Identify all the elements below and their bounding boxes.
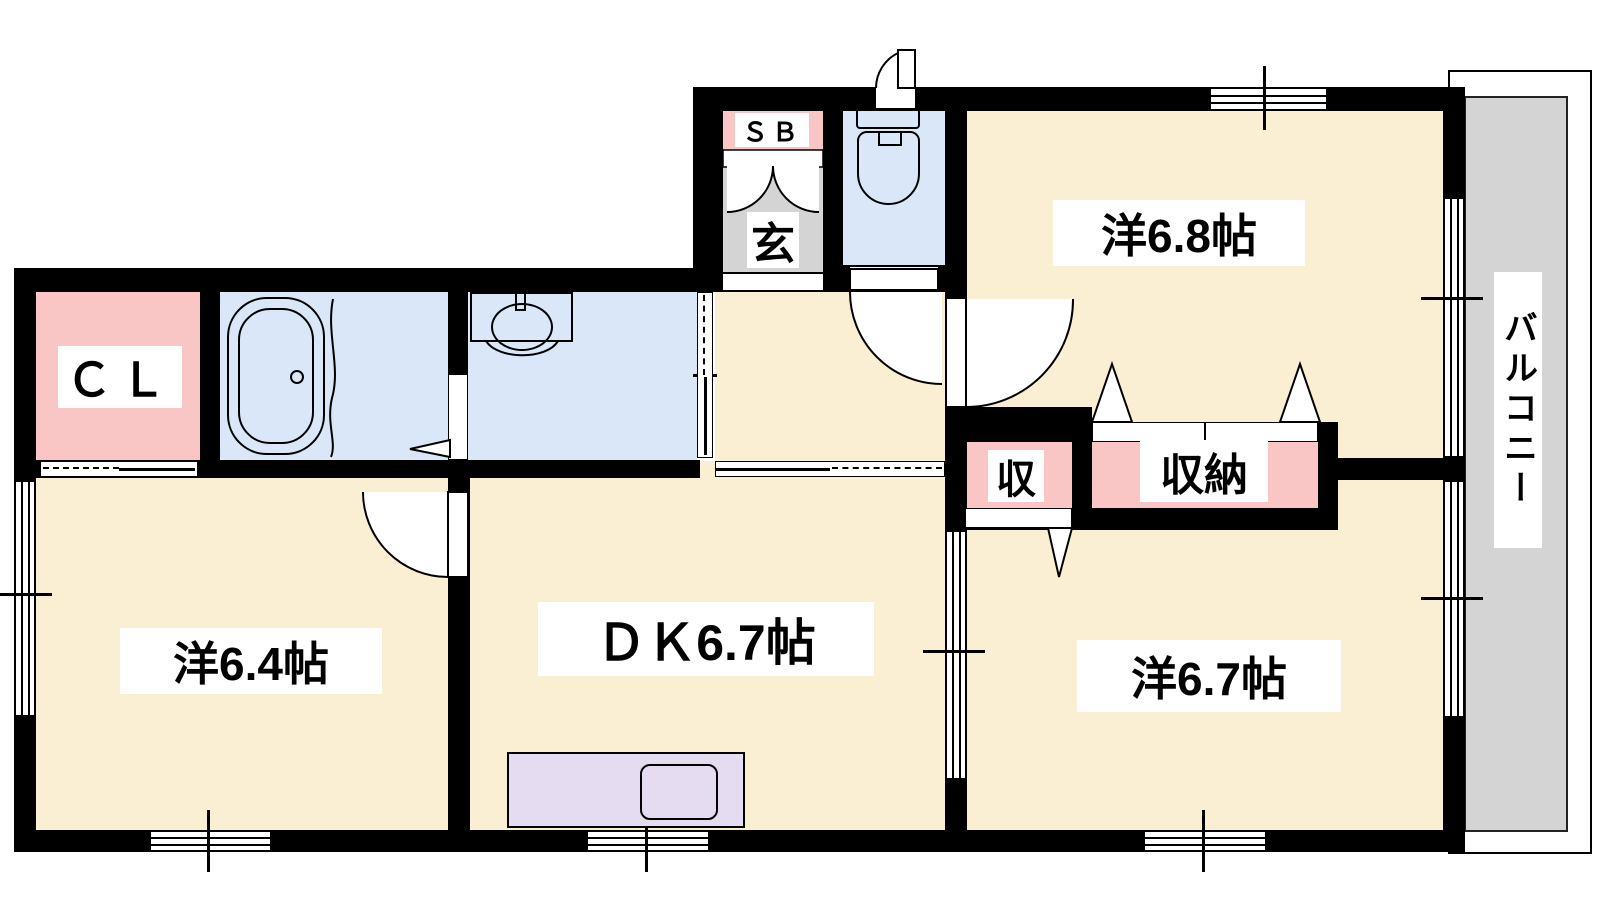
wall-top-main — [693, 87, 1465, 111]
window-pane-line — [1145, 844, 1265, 846]
window-pane-line — [588, 844, 708, 846]
window-pane-line — [1457, 199, 1459, 456]
window-tick — [1421, 597, 1483, 600]
sliding-door-track-dashed — [703, 295, 705, 375]
sliding-door-closet-cl — [40, 461, 198, 477]
wall-divider-dk-67-lower — [945, 780, 967, 832]
wall-68-bottom-right — [1338, 458, 1465, 480]
window-bedroom64-bottom — [149, 830, 272, 852]
door-opening-bathroom — [449, 375, 467, 459]
window-pane-line — [959, 532, 961, 778]
window-bedroom64-left — [14, 480, 36, 717]
wall-entry-band-left — [693, 87, 723, 292]
wall-hall-right-upper — [945, 111, 967, 298]
room-label-bedroom67: 洋6.7帖 — [1077, 640, 1341, 712]
floor-bedroom-68 — [967, 111, 1443, 458]
door-leaf-entry — [898, 50, 915, 88]
wall-right-top — [1443, 111, 1465, 197]
window-bedroom68-top — [1209, 87, 1328, 111]
window-pane-line — [1450, 199, 1452, 456]
bathtub-drain — [290, 370, 304, 384]
window-tick — [1202, 810, 1205, 872]
window-pane-line — [1211, 95, 1326, 97]
floor-plan-canvas: 洋6.8帖 洋6.4帖 ＤＫ6.7帖 洋6.7帖 ＣＬ ＳＢ 玄 収 収納 バル… — [0, 0, 1600, 900]
toilet-seat-notch — [878, 131, 902, 146]
room-label-bedroom64: 洋6.4帖 — [120, 628, 382, 694]
wall-upper-block-top — [14, 268, 714, 292]
door-swing-entry — [876, 53, 915, 88]
wall-storage-top — [945, 407, 1092, 442]
window-bedroom68-balcony — [1443, 197, 1465, 458]
kitchen-sink-icon — [640, 764, 718, 820]
room-label-entrance: 玄 — [747, 212, 799, 268]
door-opening-toilet — [850, 267, 938, 290]
sliding-partition-dk-67 — [945, 530, 967, 780]
room-label-shoe-box: ＳＢ — [735, 113, 809, 147]
wall-toilet-left — [823, 111, 843, 292]
window-pane-line — [21, 482, 23, 715]
window-tick — [923, 650, 985, 653]
window-tick — [207, 810, 210, 872]
wall-cl-bath — [200, 292, 220, 460]
window-pane-line — [952, 532, 954, 778]
window-kitchen-bottom — [586, 830, 710, 852]
window-pane-line — [151, 837, 270, 839]
entrance-step — [717, 272, 823, 292]
wall-right-lower — [1443, 718, 1465, 832]
sliding-door-washroom — [697, 292, 713, 458]
window-tick — [1421, 297, 1483, 300]
room-label-storage: 収納 — [1140, 440, 1268, 502]
room-label-balcony: バルコニー — [1494, 272, 1542, 548]
window-pane-line — [1211, 102, 1326, 104]
window-pane-line — [1145, 837, 1265, 839]
room-label-closet-cl: ＣＬ — [58, 346, 182, 408]
sliding-door-panel-line — [716, 468, 830, 471]
wall-divider-64-dk — [448, 478, 470, 832]
window-tick — [1263, 66, 1266, 130]
floor-hallway — [715, 292, 945, 462]
window-pane-line — [28, 482, 30, 715]
window-pane-line — [151, 844, 270, 846]
toilet-tank — [856, 108, 920, 129]
washbasin-icon — [491, 303, 553, 351]
door-leaf-bedroom68 — [946, 298, 966, 407]
sliding-door-hall-dk — [715, 461, 945, 477]
sliding-door-track-dashed — [832, 467, 942, 469]
room-label-bedroom68: 洋6.8帖 — [1053, 200, 1305, 266]
door-opening-entry — [876, 88, 915, 110]
door-arc-entry — [876, 53, 898, 88]
wall-storage-mid — [1072, 422, 1092, 508]
window-pane-line — [588, 837, 708, 839]
room-label-storage-small: 収 — [988, 450, 1044, 502]
sliding-door-panel-line — [704, 377, 707, 455]
window-tick — [0, 593, 52, 596]
closet-door-storage-small — [965, 508, 1072, 528]
sliding-door-panel-line — [119, 468, 195, 471]
sliding-door-track-dashed — [43, 467, 119, 469]
room-label-dining-kitchen: ＤＫ6.7帖 — [538, 602, 874, 676]
window-bedroom67-bottom — [1143, 830, 1267, 852]
